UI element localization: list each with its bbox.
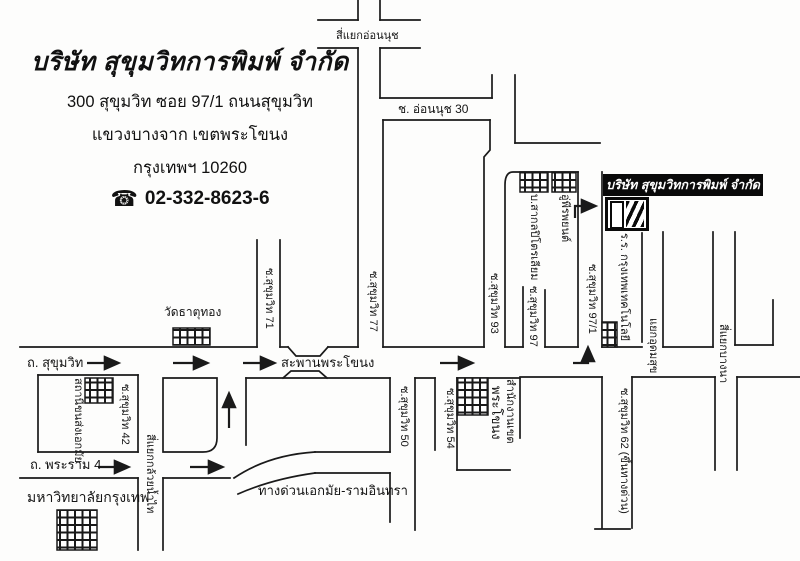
label-soi-sukhumvit-71: ซ.สุขุมวิท 71 xyxy=(262,268,275,329)
label-wat-thatthong: วัดธาตุทอง xyxy=(164,306,221,320)
label-soi-sukhumvit-97-1: ซ.สุขุมวิท 97/1 xyxy=(585,264,598,334)
garage-block xyxy=(552,172,576,192)
district-office-block xyxy=(457,378,488,415)
telephone-icon: ☎ xyxy=(110,188,137,210)
route-arrow xyxy=(573,348,588,363)
label-soi-sukhumvit-50: ซ.สุขุมวิท 50 xyxy=(397,386,410,447)
logo-spine-bar xyxy=(610,201,624,229)
bangkok-university-block xyxy=(57,510,97,550)
label-phrakhanong-bridge: สะพานพระโขนง xyxy=(281,356,374,371)
road-line xyxy=(283,371,327,378)
label-bangkok-university: มหาวิทยาลัยกรุงเทพ xyxy=(27,489,149,505)
wat-thatthong-block xyxy=(173,328,210,345)
phone-row: ☎ 02-332-8623-6 xyxy=(10,188,370,210)
soi-97-1-corner-block xyxy=(602,322,617,347)
label-ekamai-bus-terminal: สถานีขนส่งเอกมัย xyxy=(71,378,84,463)
label-bangna-junction: สี่แยกบางนา xyxy=(716,324,729,383)
label-soi-sukhumvit-54: ซ.สุขุมวิท 54 xyxy=(443,388,456,449)
address-line-3: กรุงเทพฯ 10260 xyxy=(10,155,370,181)
road-line xyxy=(163,378,217,452)
company-location-box: บริษัท สุขุมวิทการพิมพ์ จำกัด xyxy=(603,174,763,196)
label-kluaynamthai-junction: สี่แยกกล้วยน้ำไท xyxy=(143,434,156,513)
label-soi-sukhumvit-93: ซ.สุขุมวิท 93 xyxy=(487,273,500,334)
label-soi-sukhumvit-97: ซ.สุขุมวิท 97 xyxy=(526,286,539,347)
label-peera-garage: อู่พีรพยนต์ xyxy=(558,194,571,242)
label-expressway-ekamai-raminthra: ทางด่วนเอกมัย-รามอินทรา xyxy=(258,484,408,499)
map-page: สี่แยกอ่อนนุชช. อ่อนนุช 30วัดธาตุทองถ. ส… xyxy=(0,0,800,561)
label-district-office: สำนักงานเขต xyxy=(503,379,516,444)
company-header: บริษัท สุขุมวิทการพิมพ์ จำกัด 300 สุขุมว… xyxy=(10,42,370,210)
label-soi-sukhumvit-77: ซ.สุขุมวิท 77 xyxy=(366,271,379,332)
label-onnut-junction: สี่แยกอ่อนนุช xyxy=(336,30,399,43)
address-line-2: แขวงบางจาก เขตพระโขนง xyxy=(10,122,370,148)
label-soi-sukhumvit-62: ซ.สุขุมวิท 62 (ขึ้นทางด่วน) xyxy=(617,388,630,514)
logo-stripes-icon xyxy=(626,201,644,227)
label-sukhumvit-road: ถ. สุขุมวิท xyxy=(27,356,83,371)
label-sakol-petroleum: บ.สากลปิโตรเลียม xyxy=(527,194,540,280)
label-soi-onnut-30: ช. อ่อนนุช 30 xyxy=(398,103,468,117)
label-phrakhanong: พระโขนง xyxy=(488,386,503,440)
label-bangkok-technology-school: ร.ร. กรุงเทพเทคโนโลยี xyxy=(617,233,630,341)
phone-number: 02-332-8623-6 xyxy=(145,188,270,210)
sakol-petroleum-block xyxy=(520,172,548,192)
address-line-1: 300 สุขุมวิท ซอย 97/1 ถนนสุขุมวิท xyxy=(10,89,370,115)
label-udomsuk-junction: แยกอุดมสุข xyxy=(646,318,659,373)
company-logo xyxy=(605,197,649,231)
ekamai-terminal-block xyxy=(85,378,113,403)
company-name: บริษัท สุขุมวิทการพิมพ์ จำกัด xyxy=(10,42,370,82)
label-rama4-road: ถ. พระราม 4 xyxy=(30,458,101,473)
label-soi-sukhumvit-42: ซ.สุขุมวิท 42 xyxy=(118,384,131,445)
